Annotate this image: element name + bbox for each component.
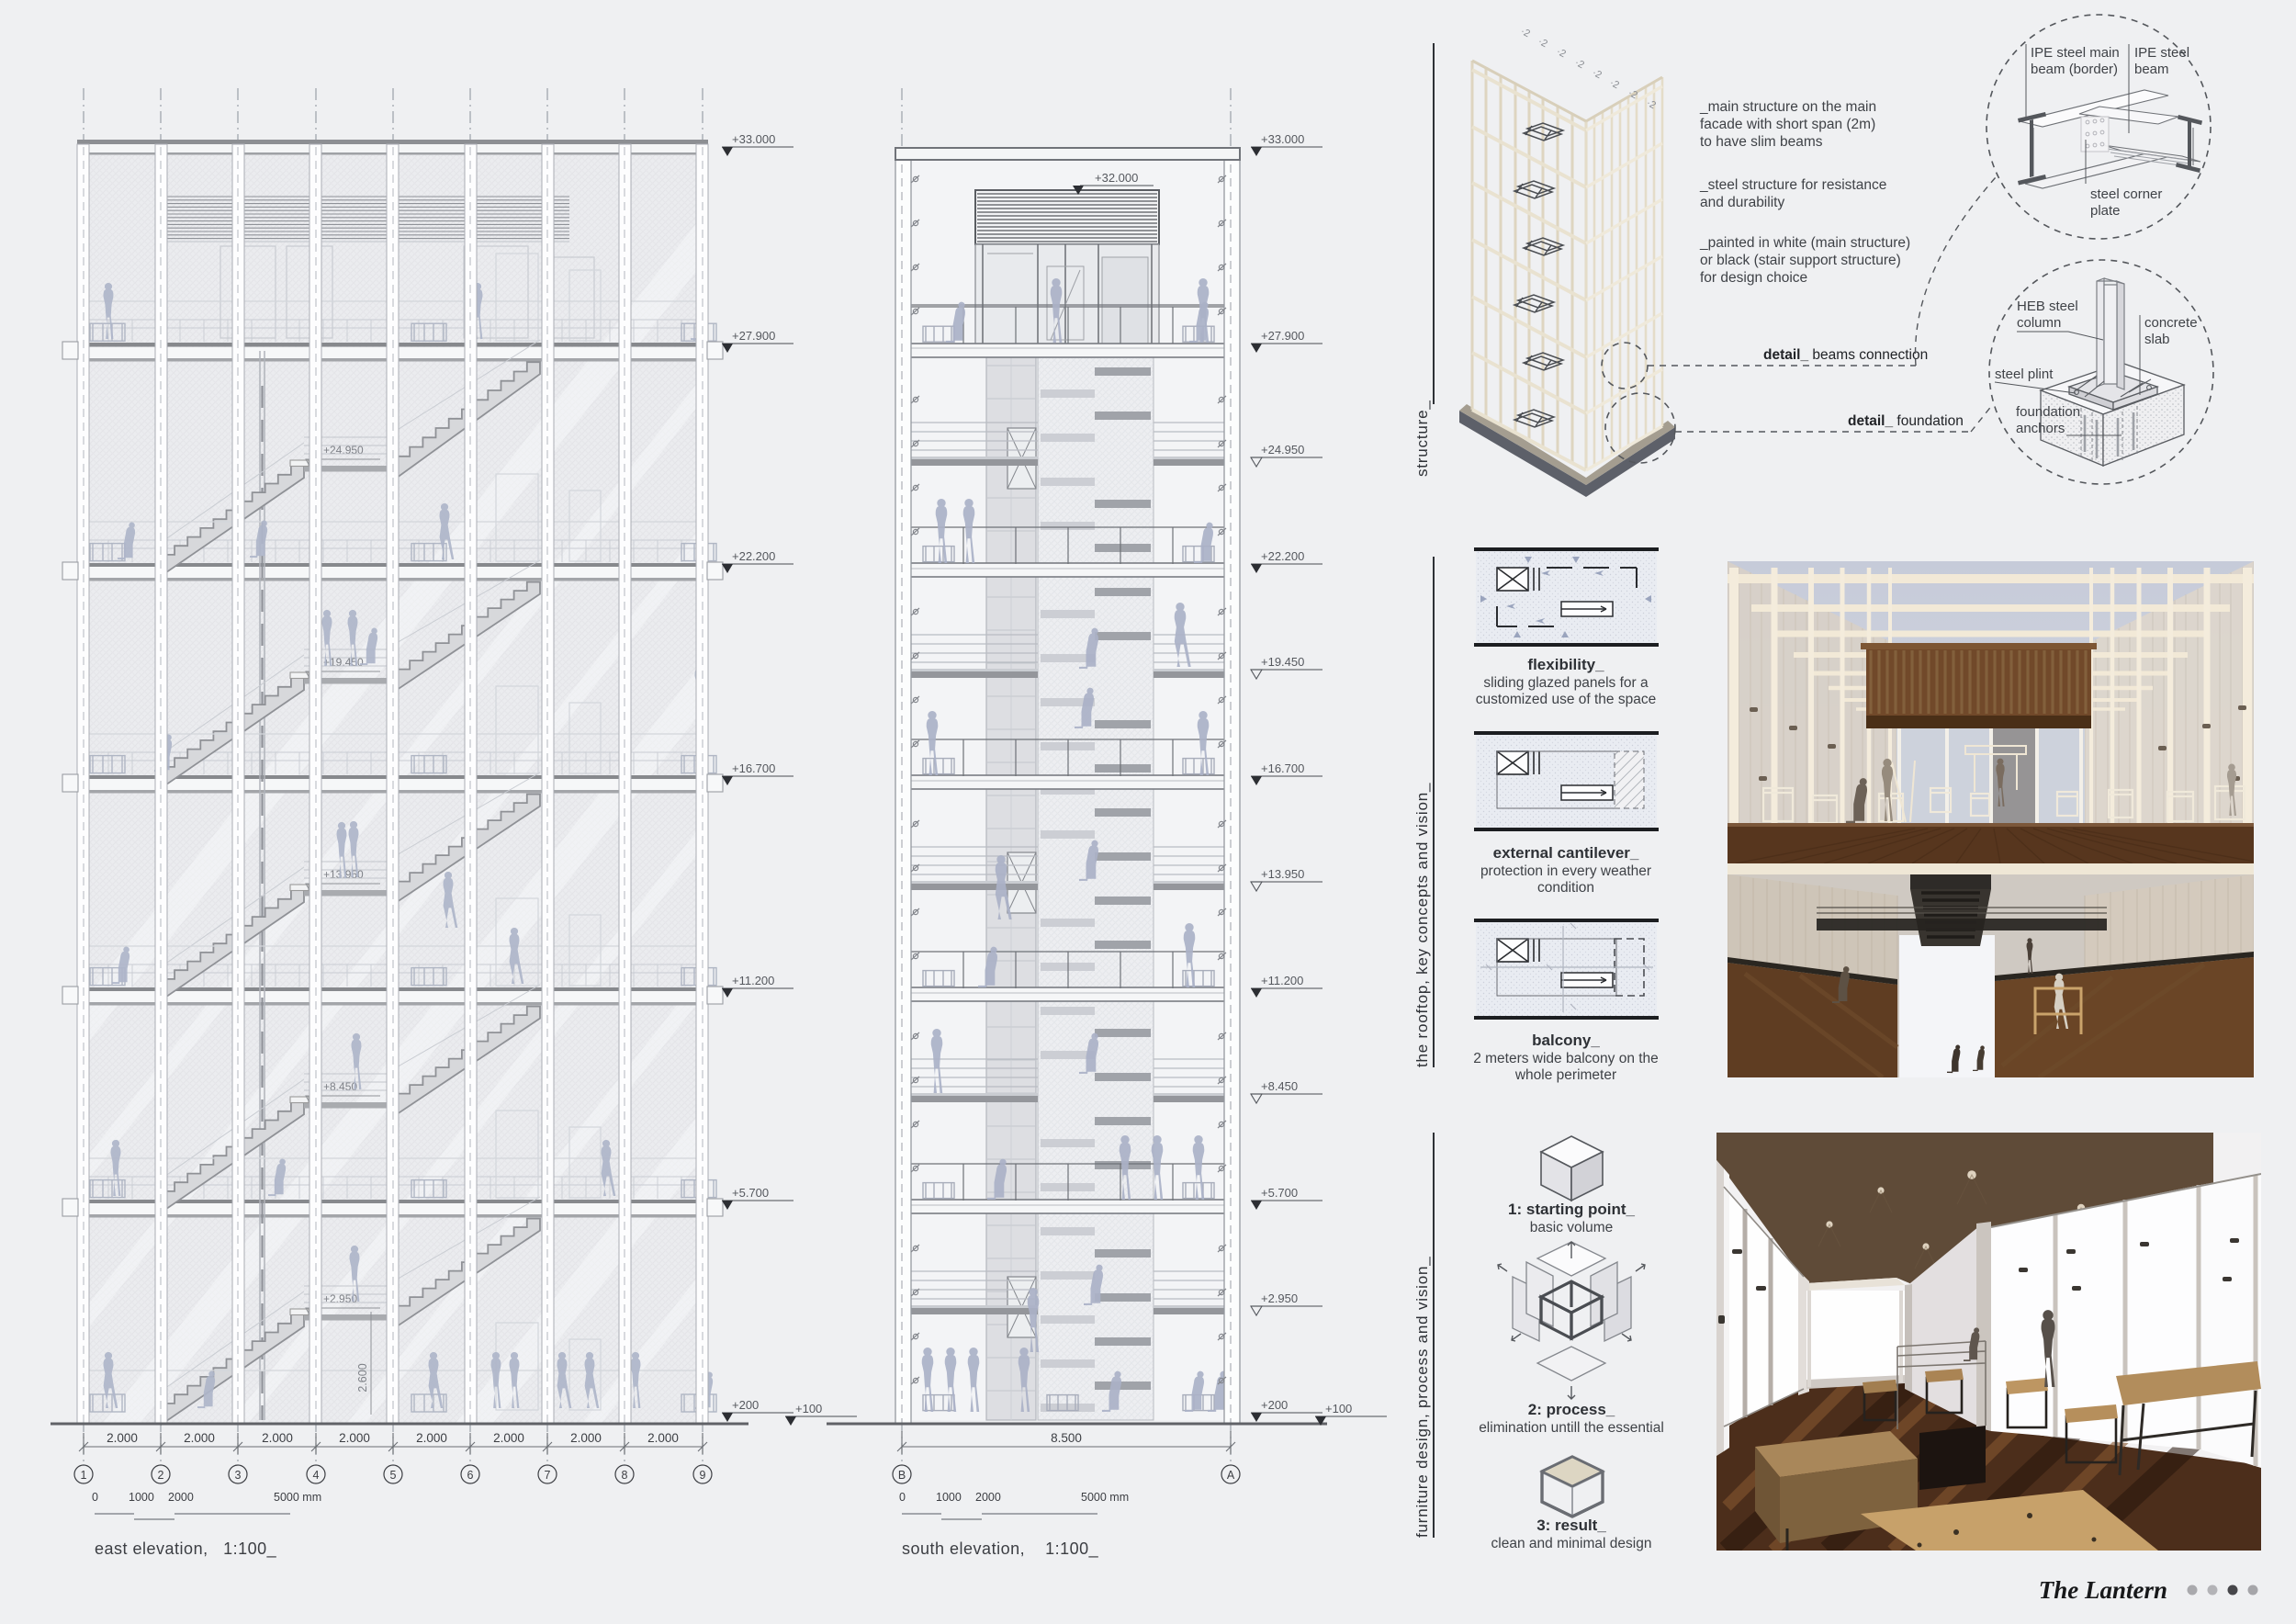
svg-text:2000: 2000 (168, 1491, 194, 1504)
svg-text:+5.700: +5.700 (1261, 1186, 1298, 1200)
svg-text:furniture design, process and: furniture design, process and vision_ (1413, 1257, 1431, 1538)
svg-text:condition: condition (1537, 880, 1594, 896)
svg-text:+5.700: +5.700 (732, 1186, 769, 1200)
svg-text:protection in every weather: protection in every weather (1480, 863, 1651, 879)
svg-text:elimination untill the essenti: elimination untill the essential (1479, 1420, 1664, 1436)
svg-text:steel corner: steel corner (2090, 186, 2162, 202)
svg-text:_painted in white (main struct: _painted in white (main structure) (1699, 235, 1910, 251)
svg-text:2.000: 2.000 (416, 1431, 447, 1445)
svg-text:1: starting point_: 1: starting point_ (1508, 1201, 1635, 1218)
svg-text:flexibility_: flexibility_ (1527, 656, 1604, 673)
svg-text:foundation: foundation (2016, 404, 2080, 420)
svg-text:+22.200: +22.200 (732, 549, 775, 563)
svg-text:beam: beam (2134, 62, 2169, 77)
svg-text:+11.200: +11.200 (1261, 974, 1303, 987)
svg-text:structure_: structure_ (1413, 400, 1431, 477)
svg-text:for design choice: for design choice (1700, 270, 1807, 286)
svg-text:+27.900: +27.900 (732, 329, 775, 343)
svg-text:south elevation, 1:100_: south elevation, 1:100_ (902, 1539, 1099, 1559)
svg-text:+24.950: +24.950 (1261, 443, 1304, 457)
svg-text:+33.000: +33.000 (732, 132, 775, 146)
svg-text:_steel structure for resistanc: _steel structure for resistance (1699, 177, 1886, 193)
svg-text:IPE steel: IPE steel (2134, 45, 2189, 61)
svg-text:the rooftop, key concepts and: the rooftop, key concepts and vision_ (1413, 783, 1431, 1067)
svg-text:external cantilever_: external cantilever_ (1493, 844, 1639, 862)
svg-text:+22.200: +22.200 (1261, 549, 1304, 563)
svg-text:+100: +100 (795, 1402, 822, 1415)
svg-text:+2.950: +2.950 (1261, 1291, 1298, 1305)
svg-text:0: 0 (92, 1491, 98, 1504)
svg-text:0: 0 (899, 1491, 906, 1504)
svg-text:+32.000: +32.000 (1095, 171, 1138, 185)
svg-text:8: 8 (622, 1469, 628, 1482)
svg-text:3: result_: 3: result_ (1536, 1517, 1606, 1534)
svg-text:5: 5 (390, 1469, 397, 1482)
svg-text:2: 2 (158, 1469, 164, 1482)
svg-text:plate: plate (2090, 203, 2121, 219)
svg-text:1000: 1000 (936, 1491, 962, 1504)
svg-text:and durability: and durability (1700, 195, 1784, 210)
svg-text:+19.450: +19.450 (1261, 655, 1304, 669)
svg-text:whole perimeter: whole perimeter (1514, 1067, 1616, 1083)
svg-text:+33.000: +33.000 (1261, 132, 1304, 146)
svg-text:detail_ beams connection: detail_ beams connection (1763, 347, 1928, 363)
svg-text:column: column (2017, 315, 2061, 331)
svg-text:4: 4 (313, 1469, 320, 1482)
svg-text:2.000: 2.000 (262, 1431, 293, 1445)
svg-text:1000: 1000 (129, 1491, 154, 1504)
svg-text:steel plint: steel plint (1995, 367, 2054, 382)
svg-text:2.000: 2.000 (107, 1431, 138, 1445)
svg-text:+100: +100 (1325, 1402, 1352, 1415)
svg-text:beam (border): beam (border) (2031, 62, 2118, 77)
svg-text:A: A (1227, 1469, 1235, 1482)
svg-text:facade with short span (2m): facade with short span (2m) (1700, 117, 1875, 132)
svg-text:anchors: anchors (2016, 421, 2065, 436)
svg-text:B: B (898, 1469, 906, 1482)
svg-text:+200: +200 (1261, 1398, 1288, 1412)
svg-text:_main structure on the main: _main structure on the main (1699, 99, 1876, 115)
svg-text:balcony_: balcony_ (1532, 1032, 1600, 1049)
svg-text:2000: 2000 (975, 1491, 1001, 1504)
svg-text:5000 mm: 5000 mm (1081, 1491, 1129, 1504)
svg-text:2.600: 2.600 (356, 1363, 369, 1392)
svg-text:basic volume: basic volume (1530, 1220, 1613, 1235)
svg-text:5000 mm: 5000 mm (274, 1491, 321, 1504)
svg-text:concrete: concrete (2144, 315, 2198, 331)
svg-text:sliding glazed panels for a: sliding glazed panels for a (1483, 675, 1649, 691)
svg-text:9: 9 (700, 1469, 706, 1482)
svg-text:2.000: 2.000 (184, 1431, 215, 1445)
svg-text:slab: slab (2144, 332, 2170, 347)
svg-text:IPE steel main: IPE steel main (2031, 45, 2120, 61)
svg-text:+27.900: +27.900 (1261, 329, 1304, 343)
svg-text:6: 6 (467, 1469, 474, 1482)
svg-text:1: 1 (81, 1469, 87, 1482)
svg-text:2: process_: 2: process_ (1528, 1401, 1615, 1418)
svg-text:detail_ foundation: detail_ foundation (1848, 413, 1964, 429)
svg-text:customized use of the space: customized use of the space (1476, 692, 1656, 707)
svg-text:+16.700: +16.700 (1261, 761, 1304, 775)
svg-text:+13.950: +13.950 (1261, 867, 1304, 881)
svg-text:+200: +200 (732, 1398, 759, 1412)
svg-text:7: 7 (545, 1469, 551, 1482)
svg-text:east elevation, 1:100_: east elevation, 1:100_ (95, 1539, 277, 1559)
svg-text:+8.450: +8.450 (1261, 1079, 1298, 1093)
svg-text:3: 3 (235, 1469, 242, 1482)
svg-text:+16.700: +16.700 (732, 761, 775, 775)
svg-text:8.500: 8.500 (1051, 1431, 1082, 1445)
svg-text:2.000: 2.000 (570, 1431, 602, 1445)
svg-text:2 meters wide balcony on the: 2 meters wide balcony on the (1473, 1051, 1659, 1066)
svg-text:The Lantern: The Lantern (2039, 1576, 2167, 1604)
svg-text:+11.200: +11.200 (732, 974, 774, 987)
svg-text:HEB steel: HEB steel (2017, 299, 2078, 314)
svg-text:to have slim beams: to have slim beams (1700, 134, 1823, 150)
svg-text:clean and minimal design: clean and minimal design (1491, 1536, 1652, 1551)
svg-text:or black (stair support struct: or black (stair support structure) (1700, 253, 1901, 268)
svg-text:2.000: 2.000 (493, 1431, 524, 1445)
svg-text:2.000: 2.000 (647, 1431, 679, 1445)
svg-text:2.000: 2.000 (339, 1431, 370, 1445)
